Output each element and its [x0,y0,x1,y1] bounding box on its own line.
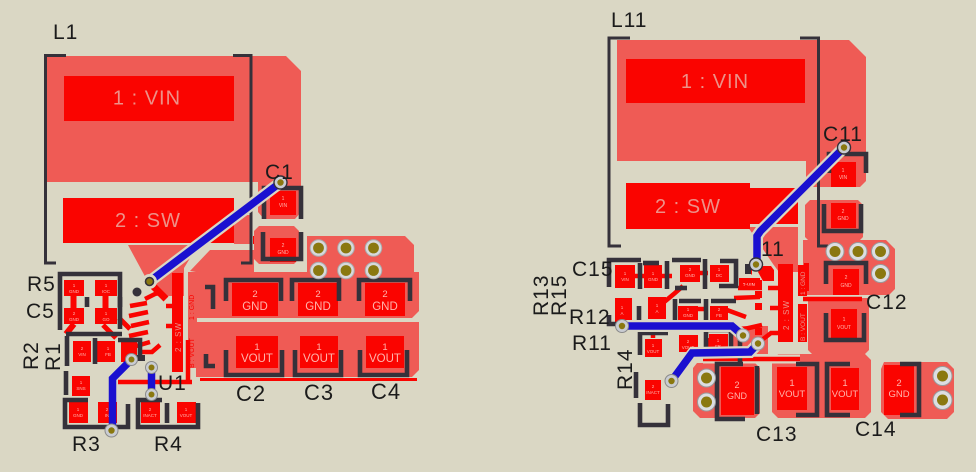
svg-text:1 : VIN: 1 : VIN [113,88,181,110]
svg-text:R2: R2 [20,341,43,370]
svg-text:R12: R12 [569,306,611,329]
svg-text:VOUT: VOUT [647,349,660,354]
svg-text:GND: GND [372,301,398,313]
svg-text:GND: GND [69,317,80,322]
svg-text:2: 2 [896,378,901,389]
svg-text:GND: GND [648,277,659,282]
svg-text:GND: GND [73,413,84,418]
svg-text:1: 1 [316,342,321,353]
svg-text:2 : SW: 2 : SW [115,210,181,232]
svg-text:VOUT: VOUT [832,389,859,400]
svg-text:C3: C3 [304,380,334,405]
svg-text:R4: R4 [154,433,183,456]
svg-text:IN: IN [105,413,110,418]
svg-text:2: 2 [252,289,257,300]
svg-text:1: 1 [789,378,794,389]
svg-text:1: 1 [843,317,846,323]
svg-text:C15: C15 [572,258,614,281]
svg-text:A: A [655,309,658,314]
svg-text:2: 2 [315,289,320,300]
svg-text:C13: C13 [756,423,798,446]
svg-text:GND: GND [683,313,694,318]
svg-text:GND: GND [727,391,748,401]
svg-text:VOUT: VOUT [837,325,851,331]
svg-text:R14: R14 [614,348,637,390]
svg-text:B : VOUT: B : VOUT [800,313,807,341]
svg-text:VIN: VIN [279,203,288,209]
svg-text:VOUT: VOUT [369,353,401,365]
svg-text:GND: GND [69,289,80,294]
svg-text:2: 2 [842,209,845,215]
svg-text:R3: R3 [72,433,101,456]
svg-text:1: 1 [254,342,259,353]
svg-text:VIN: VIN [621,277,629,282]
svg-text:INACT: INACT [646,390,660,395]
svg-text:1 : GND: 1 : GND [800,271,807,295]
svg-text:GND: GND [685,273,696,278]
svg-text:SNS: SNS [76,386,85,391]
svg-text:FB: FB [716,313,722,318]
svg-text:VOUT: VOUT [241,353,273,365]
svg-text:IOC: IOC [102,289,111,294]
svg-text:R5: R5 [27,273,56,296]
svg-text:GND: GND [277,250,289,256]
svg-text:INACT: INACT [143,413,157,418]
svg-text:L1: L1 [53,21,78,44]
svg-text:R1: R1 [42,342,65,371]
svg-text:GND: GND [305,301,331,313]
svg-text:C12: C12 [866,291,908,314]
svg-text:2: 2 [282,243,285,249]
svg-text:GND: GND [242,301,268,313]
svg-text:VOUT: VOUT [779,389,806,400]
svg-text:C4: C4 [371,379,401,404]
svg-text:VOUT: VOUT [180,413,193,418]
svg-text:2: 2 [734,380,739,390]
svg-text:1: 1 [382,342,387,353]
svg-text:VIN: VIN [78,352,86,357]
svg-text:VOUT: VOUT [303,353,335,365]
svg-text:C2: C2 [236,381,266,406]
svg-text:R11: R11 [572,332,612,355]
svg-text:C5: C5 [26,300,55,323]
svg-text:A: A [620,311,623,316]
svg-text:2: 2 [382,289,387,300]
svg-text:R15: R15 [548,274,571,316]
svg-text:2 : SW: 2 : SW [174,322,183,352]
svg-text:GND: GND [888,389,909,400]
svg-text:C1: C1 [265,161,294,184]
svg-text:1 : GND: 1 : GND [189,295,196,320]
svg-text:2 : SW: 2 : SW [782,300,791,330]
svg-text:GND: GND [837,216,849,222]
svg-text:1: 1 [842,168,845,174]
svg-text:C11: C11 [823,123,863,146]
svg-text:11: 11 [761,238,785,261]
svg-text:GO: GO [102,317,110,322]
svg-text:C14: C14 [855,418,897,441]
svg-text:2: 2 [845,275,848,281]
svg-text:1: 1 [842,378,847,389]
svg-text:L11: L11 [611,9,647,32]
svg-text:GND: GND [840,283,852,289]
svg-text:1: 1 [282,196,285,202]
svg-text:DC: DC [716,273,723,278]
svg-text:VIN: VIN [839,175,848,181]
svg-text:2 : SW: 2 : SW [655,196,721,218]
svg-text:U1: U1 [158,372,187,395]
svg-text:1 : VIN: 1 : VIN [681,71,749,93]
svg-text:FB: FB [105,352,111,357]
